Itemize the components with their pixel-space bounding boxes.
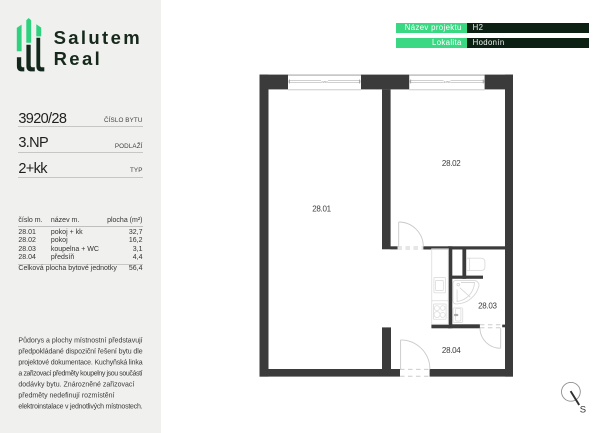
svg-text:2250: 2250 (321, 80, 328, 84)
svg-text:28.02: 28.02 (442, 159, 461, 168)
svg-text:28.01: 28.01 (312, 204, 331, 213)
svg-text:S: S (580, 405, 586, 416)
svg-text:28.04: 28.04 (442, 346, 461, 355)
svg-text:2250: 2250 (444, 80, 451, 84)
svg-text:28.03: 28.03 (478, 302, 497, 311)
